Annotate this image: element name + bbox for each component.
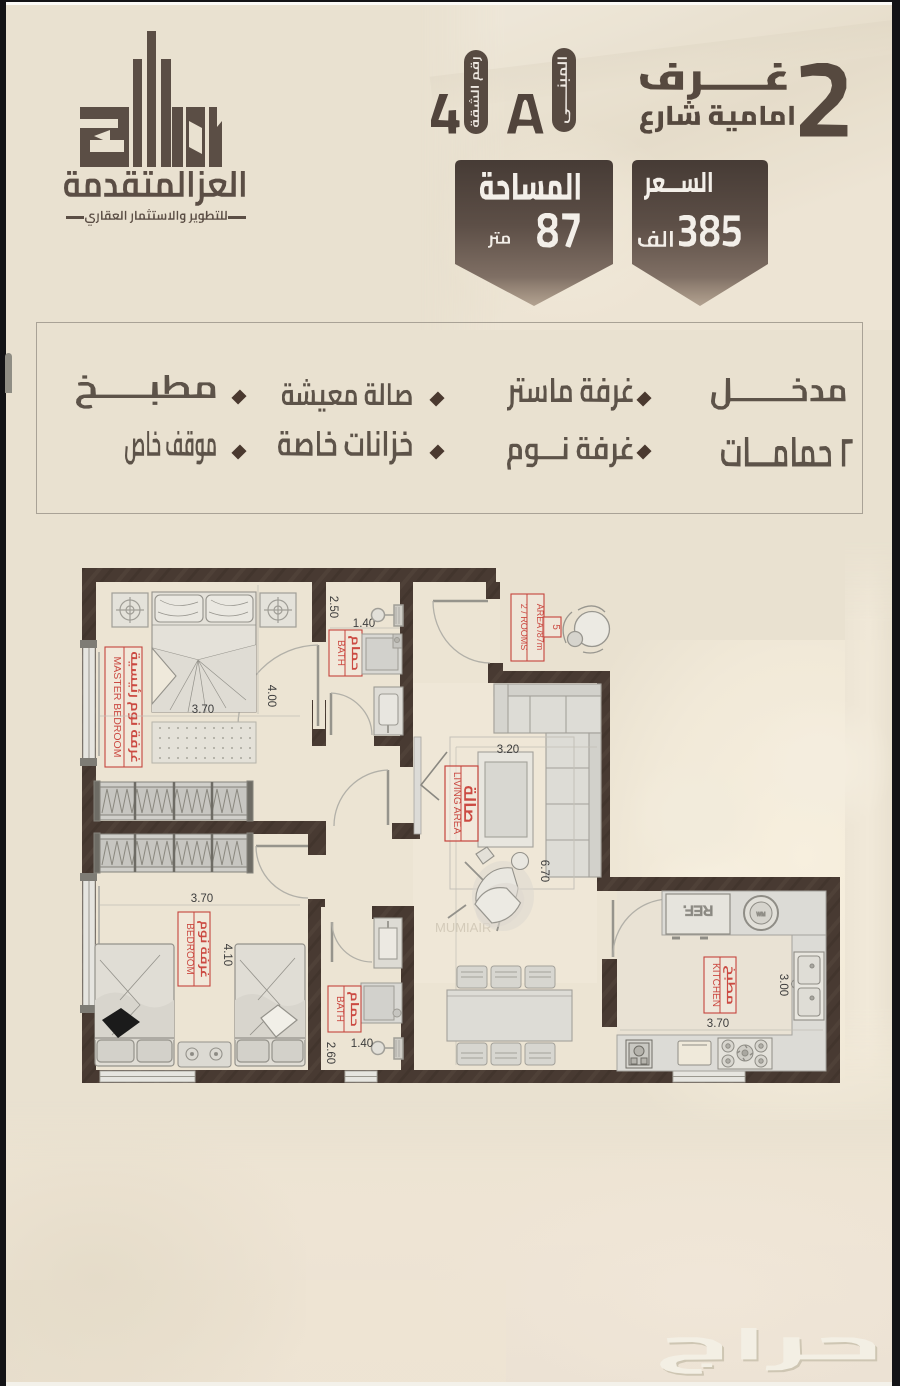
svg-text:BATH: BATH (334, 996, 345, 1022)
svg-text:3.70: 3.70 (191, 893, 213, 905)
svg-text:3.20: 3.20 (497, 744, 519, 756)
svg-text:5: 5 (550, 624, 561, 630)
svg-text:4.00: 4.00 (265, 685, 277, 707)
svg-text:6.70: 6.70 (538, 860, 550, 882)
svg-text:REF.: REF. (683, 903, 713, 919)
svg-text:3.70: 3.70 (707, 1018, 729, 1030)
svg-text:2.50: 2.50 (327, 596, 339, 618)
svg-text:BEDROOM: BEDROOM (184, 923, 195, 975)
svg-text:LIVING AREA: LIVING AREA (451, 772, 462, 835)
svg-text:1.40: 1.40 (351, 1038, 373, 1050)
svg-text:1.40: 1.40 (353, 618, 375, 630)
svg-text:3.00: 3.00 (777, 974, 789, 996)
svg-text:KITCHEN: KITCHEN (710, 963, 721, 1007)
svg-text:4.10: 4.10 (221, 944, 233, 966)
svg-text:WM: WM (757, 912, 766, 918)
svg-text:3.70: 3.70 (192, 704, 214, 716)
svg-text:BATH: BATH (335, 640, 346, 666)
svg-text:2 / ROOMS: 2 / ROOMS (519, 604, 529, 651)
svg-text:MASTER BEDROOM: MASTER BEDROOM (111, 657, 123, 758)
svg-text:2.60: 2.60 (324, 1042, 336, 1064)
